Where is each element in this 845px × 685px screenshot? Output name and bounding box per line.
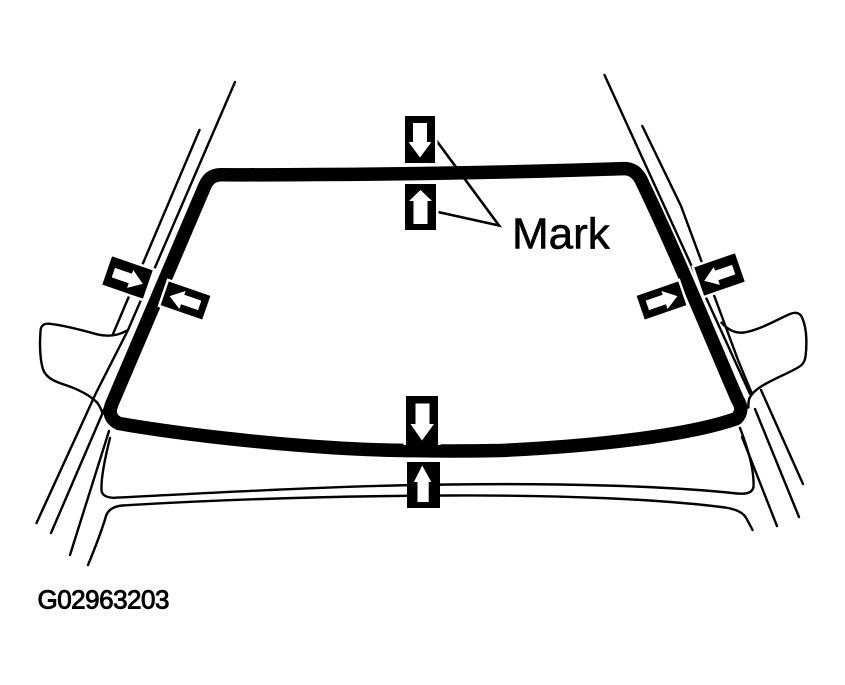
svg-text:G02963203: G02963203 [38, 585, 169, 615]
svg-text:Mark: Mark [512, 210, 611, 259]
